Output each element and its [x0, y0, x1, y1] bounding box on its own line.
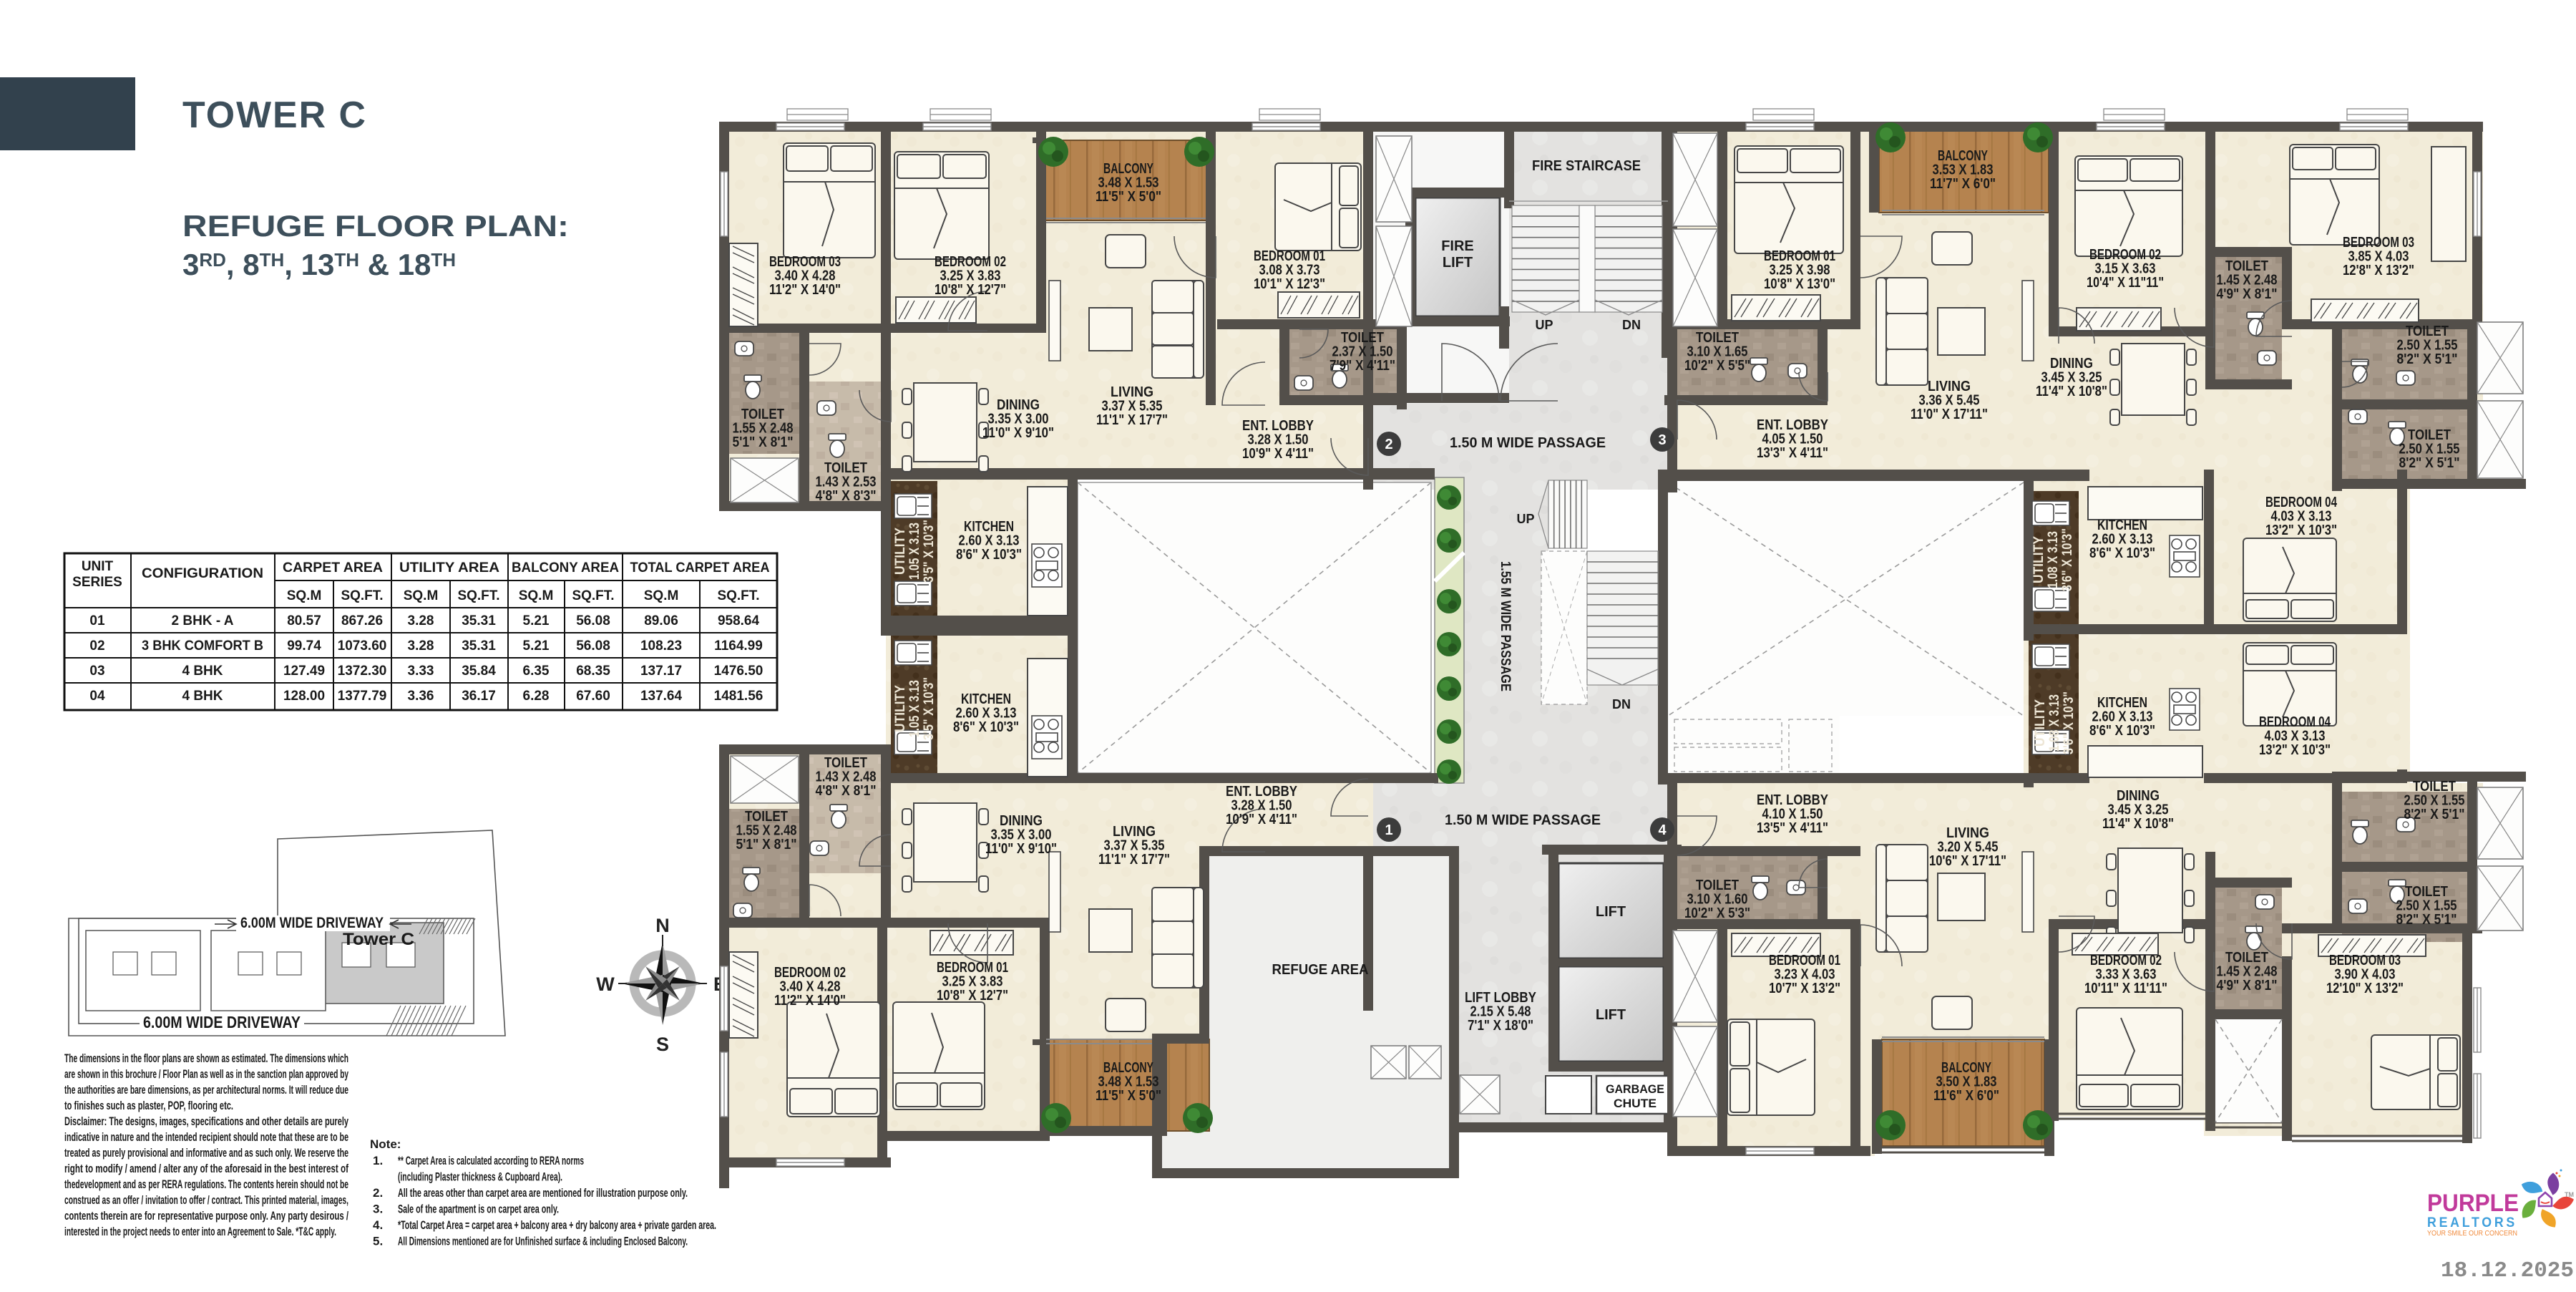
svg-text:The dimensions in the floor pl: The dimensions in the floor plans are sh… — [64, 1051, 348, 1065]
svg-text:11'0" X 17'11": 11'0" X 17'11" — [1911, 407, 1988, 422]
svg-text:UP: UP — [1516, 512, 1534, 526]
svg-text:5.21: 5.21 — [523, 613, 550, 628]
svg-text:TOWER C: TOWER C — [182, 94, 367, 136]
svg-text:UNIT: UNIT — [82, 559, 114, 574]
svg-text:36.17: 36.17 — [462, 689, 496, 704]
svg-text:128.00: 128.00 — [283, 689, 325, 704]
svg-text:2: 2 — [1385, 437, 1392, 452]
svg-text:3.28: 3.28 — [408, 613, 434, 628]
svg-text:UTILITY: UTILITY — [893, 685, 908, 732]
svg-text:56.08: 56.08 — [576, 638, 610, 654]
svg-text:10'9" X 4'11": 10'9" X 4'11" — [1226, 812, 1297, 827]
svg-text:YOUR SMILE OUR CONCERN: YOUR SMILE OUR CONCERN — [2427, 1230, 2517, 1238]
svg-text:interested in the project need: interested in the project needs to enter… — [64, 1225, 336, 1238]
svg-text:All the areas other than carpe: All the areas other than carpet area are… — [398, 1186, 688, 1200]
svg-text:11'4" X 10'8": 11'4" X 10'8" — [2102, 816, 2174, 832]
svg-text:LIFT: LIFT — [1443, 255, 1473, 271]
svg-text:SERIES: SERIES — [72, 575, 122, 590]
svg-text:8'2" X 5'1": 8'2" X 5'1" — [2404, 807, 2465, 822]
svg-text:8'2" X 5'1": 8'2" X 5'1" — [2399, 455, 2460, 471]
svg-text:3'5" X 10'3": 3'5" X 10'3" — [922, 677, 937, 740]
svg-text:01: 01 — [89, 613, 105, 628]
svg-text:1073.60: 1073.60 — [338, 638, 387, 654]
svg-text:N: N — [655, 915, 670, 936]
svg-text:UTILITY: UTILITY — [2031, 536, 2046, 583]
svg-text:4'9" X 8'1": 4'9" X 8'1" — [2217, 286, 2278, 302]
svg-text:W: W — [596, 973, 615, 995]
svg-text:FIRE: FIRE — [1441, 238, 1474, 254]
svg-text:indicative in nature and the i: indicative in nature and the intended re… — [64, 1130, 348, 1144]
svg-text:DN: DN — [1622, 318, 1641, 332]
svg-text:5.: 5. — [373, 1235, 383, 1248]
svg-text:PURPLE: PURPLE — [2427, 1190, 2519, 1217]
svg-text:Tower C: Tower C — [343, 930, 414, 949]
svg-text:10'9" X 4'11": 10'9" X 4'11" — [1242, 446, 1314, 462]
svg-text:10'1" X 12'3": 10'1" X 12'3" — [1254, 276, 1325, 292]
svg-text:4.: 4. — [373, 1218, 383, 1232]
svg-text:68.35: 68.35 — [576, 664, 610, 679]
svg-text:SQ.FT.: SQ.FT. — [572, 588, 614, 603]
svg-text:SQ.M: SQ.M — [519, 588, 554, 603]
svg-text:35.31: 35.31 — [462, 613, 496, 628]
svg-text:6.35: 6.35 — [523, 664, 550, 679]
svg-text:11'5" X 5'0": 11'5" X 5'0" — [1096, 189, 1161, 205]
svg-text:3: 3 — [1658, 432, 1666, 448]
svg-text:35.84: 35.84 — [462, 664, 496, 679]
svg-text:4'8" X 8'1": 4'8" X 8'1" — [816, 783, 877, 799]
svg-text:02: 02 — [89, 638, 104, 654]
svg-text:3'6" X 10'3": 3'6" X 10'3" — [2060, 528, 2075, 591]
svg-text:SQ.FT.: SQ.FT. — [717, 588, 759, 603]
svg-text:11'4" X 10'8": 11'4" X 10'8" — [2036, 384, 2107, 399]
svg-text:CHUTE: CHUTE — [1614, 1097, 1657, 1110]
svg-text:18.12.2025: 18.12.2025 — [2441, 1258, 2574, 1283]
svg-text:GARBAGE: GARBAGE — [1606, 1082, 1664, 1096]
svg-text:12'10" X 13'2": 12'10" X 13'2" — [2326, 981, 2404, 996]
svg-text:4'9" X 8'1": 4'9" X 8'1" — [2217, 978, 2278, 994]
svg-text:SQ.M: SQ.M — [404, 588, 439, 603]
svg-text:UTILITY AREA: UTILITY AREA — [399, 560, 499, 575]
svg-text:56.08: 56.08 — [576, 613, 610, 628]
svg-text:35.31: 35.31 — [462, 638, 496, 654]
svg-text:1.55 M WIDE PASSAGE: 1.55 M WIDE PASSAGE — [1498, 561, 1513, 691]
svg-text:11'2" X 14'0": 11'2" X 14'0" — [769, 282, 841, 298]
svg-text:4 BHK: 4 BHK — [182, 664, 223, 679]
svg-text:construed as an offer / invita: construed as an offer / invitation to of… — [64, 1193, 348, 1207]
svg-text:3.36: 3.36 — [408, 689, 434, 704]
svg-text:BALCONY AREA: BALCONY AREA — [512, 560, 619, 575]
svg-text:127.49: 127.49 — [283, 664, 325, 679]
svg-text:11'0" X 9'10": 11'0" X 9'10" — [982, 425, 1054, 441]
svg-text:to finishes such as plaster, P: to finishes such as plaster, POP, floori… — [64, 1099, 233, 1112]
svg-text:10'8" X 12'7": 10'8" X 12'7" — [935, 282, 1006, 298]
svg-text:5.21: 5.21 — [523, 638, 550, 654]
svg-text:** Carpet Area is calculated a: ** Carpet Area is calculated according t… — [398, 1154, 584, 1167]
svg-text:Disclaimer: The designs, image: Disclaimer: The designs, images, specifi… — [64, 1114, 348, 1128]
svg-text:(including Plaster thickness &: (including Plaster thickness & Cupboard … — [398, 1170, 562, 1184]
svg-text:3.: 3. — [373, 1203, 383, 1216]
svg-text:11'5" X 5'0": 11'5" X 5'0" — [1096, 1088, 1161, 1104]
svg-text:5'1" X 8'1": 5'1" X 8'1" — [736, 837, 797, 853]
svg-text:4'8" X 8'3": 4'8" X 8'3" — [816, 488, 877, 504]
svg-text:6.00M WIDE DRIVEWAY: 6.00M WIDE DRIVEWAY — [143, 1013, 301, 1031]
svg-text:1.08 X 3.13: 1.08 X 3.13 — [2046, 531, 2061, 588]
svg-text:10'8" X 13'0": 10'8" X 13'0" — [1764, 276, 1835, 292]
svg-text:13'2" X 10'3": 13'2" X 10'3" — [2259, 742, 2331, 758]
svg-text:1372.30: 1372.30 — [338, 664, 387, 679]
svg-text:10'2" X 5'3": 10'2" X 5'3" — [1684, 905, 1750, 921]
svg-text:1481.56: 1481.56 — [714, 689, 763, 704]
svg-text:CARPET AREA: CARPET AREA — [283, 560, 383, 575]
svg-text:8'2" X 5'1": 8'2" X 5'1" — [2397, 351, 2458, 367]
svg-text:contents therein are for repre: contents therein are for representative … — [64, 1209, 348, 1223]
svg-text:CONFIGURATION: CONFIGURATION — [142, 566, 263, 581]
svg-text:10'4" X 11"11": 10'4" X 11"11" — [2087, 275, 2164, 291]
svg-text:the authorities are bare dimen: the authorities are bare dimensions, as … — [64, 1083, 348, 1097]
svg-text:REFUGE AREA: REFUGE AREA — [1272, 962, 1369, 978]
svg-text:8'6" X 10'3": 8'6" X 10'3" — [953, 719, 1019, 735]
svg-text:137.64: 137.64 — [640, 689, 683, 704]
svg-text:REALTORS: REALTORS — [2427, 1215, 2517, 1230]
svg-text:958.64: 958.64 — [718, 613, 760, 628]
svg-text:6.28: 6.28 — [523, 689, 550, 704]
svg-text:1.05 X 3.13: 1.05 X 3.13 — [907, 680, 922, 737]
svg-text:10'2" X 5'5": 10'2" X 5'5" — [1684, 358, 1750, 374]
svg-text:2 BHK - A: 2 BHK - A — [172, 613, 234, 628]
svg-text:10'6" X 17'11": 10'6" X 17'11" — [1929, 853, 2006, 869]
svg-text:137.17: 137.17 — [640, 664, 682, 679]
svg-text:UTILITY: UTILITY — [893, 528, 908, 575]
svg-text:1.05 X 3.13: 1.05 X 3.13 — [907, 523, 922, 580]
svg-text:04: 04 — [89, 689, 105, 704]
svg-text:12'8" X 13'2": 12'8" X 13'2" — [2343, 263, 2414, 278]
svg-text:S: S — [656, 1034, 669, 1055]
svg-text:11'1" X 17'7": 11'1" X 17'7" — [1096, 412, 1168, 428]
svg-text:11'0" X 9'10": 11'0" X 9'10" — [985, 841, 1057, 857]
svg-text:13'5" X 4'11": 13'5" X 4'11" — [1757, 820, 1828, 836]
svg-text:1377.79: 1377.79 — [338, 689, 387, 704]
svg-text:thedevelopment and as per RERA: thedevelopment and as per RERA regulatio… — [64, 1177, 348, 1191]
svg-text:99.74: 99.74 — [287, 638, 321, 654]
svg-text:Sale of the apartment is on ca: Sale of the apartment is on carpet area … — [398, 1203, 559, 1216]
svg-text:80.57: 80.57 — [287, 613, 321, 628]
svg-text:13'3" X 4'11": 13'3" X 4'11" — [1757, 445, 1828, 461]
svg-text:TM: TM — [2565, 1191, 2574, 1198]
svg-text:TOTAL CARPET AREA: TOTAL CARPET AREA — [630, 560, 770, 575]
svg-text:67.60: 67.60 — [576, 689, 610, 704]
svg-text:7'1" X 18'0": 7'1" X 18'0" — [1468, 1018, 1533, 1034]
svg-text:Note:: Note: — [370, 1137, 401, 1151]
svg-text:7'9" X 4'11": 7'9" X 4'11" — [1330, 358, 1395, 374]
svg-text:11'1" X 17'7": 11'1" X 17'7" — [1098, 852, 1170, 868]
svg-text:1.50 M WIDE PASSAGE: 1.50 M WIDE PASSAGE — [1445, 812, 1601, 828]
svg-text:5'1" X 8'1": 5'1" X 8'1" — [733, 434, 794, 450]
svg-text:3'5" X 10'3": 3'5" X 10'3" — [922, 520, 937, 583]
svg-text:SQ.M: SQ.M — [287, 588, 322, 603]
svg-text:2.: 2. — [373, 1186, 383, 1200]
svg-text:are shown in this brochure / F: are shown in this brochure / Floor Plan … — [64, 1067, 348, 1081]
svg-text:treated as purely provisional: treated as purely provisional and inform… — [64, 1146, 348, 1160]
svg-text:REFUGE FLOOR PLAN:: REFUGE FLOOR PLAN: — [182, 209, 569, 243]
svg-text:11'2" X 14'0": 11'2" X 14'0" — [774, 993, 846, 1009]
svg-text:1.: 1. — [373, 1154, 383, 1167]
svg-text:UTILITY: UTILITY — [2033, 699, 2048, 747]
svg-text:UP: UP — [1535, 318, 1553, 332]
svg-text:1.50 M WIDE PASSAGE: 1.50 M WIDE PASSAGE — [1450, 435, 1606, 451]
svg-text:1: 1 — [1385, 822, 1392, 838]
svg-text:3.28: 3.28 — [408, 638, 434, 654]
svg-text:10'8" X 12'7": 10'8" X 12'7" — [937, 988, 1008, 1004]
svg-text:All Dimensions mentioned are f: All Dimensions mentioned are for Unfinis… — [398, 1235, 688, 1248]
svg-text:10'7" X 13'2": 10'7" X 13'2" — [1769, 981, 1840, 996]
svg-text:8'6" X 10'3": 8'6" X 10'3" — [956, 547, 1022, 563]
svg-text:4: 4 — [1658, 822, 1667, 838]
svg-text:1476.50: 1476.50 — [714, 664, 763, 679]
svg-text:1164.99: 1164.99 — [714, 638, 763, 654]
svg-text:13'2" X 10'3": 13'2" X 10'3" — [2265, 523, 2337, 538]
svg-text:867.26: 867.26 — [341, 613, 383, 628]
svg-text:3.33: 3.33 — [408, 664, 434, 679]
svg-text:LIFT: LIFT — [1596, 904, 1626, 920]
svg-text:SQ.FT.: SQ.FT. — [457, 588, 499, 603]
svg-text:DN: DN — [1612, 697, 1631, 711]
svg-text:8'2" X 5'1": 8'2" X 5'1" — [2396, 912, 2457, 928]
svg-text:*Total Carpet Area = carpet ar: *Total Carpet Area = carpet area + balco… — [398, 1218, 716, 1232]
svg-text:89.06: 89.06 — [644, 613, 678, 628]
svg-text:1.08 X 3.13: 1.08 X 3.13 — [2047, 694, 2062, 752]
svg-text:FIRE STAIRCASE: FIRE STAIRCASE — [1532, 158, 1641, 174]
svg-text:108.23: 108.23 — [640, 638, 682, 654]
svg-text:11'7" X 6'0": 11'7" X 6'0" — [1930, 176, 1996, 192]
svg-text:SQ.M: SQ.M — [644, 588, 679, 603]
svg-text:10'11" X 11'11": 10'11" X 11'11" — [2084, 981, 2167, 996]
svg-text:right to modify / amend / alte: right to modify / amend / alter any of t… — [64, 1162, 348, 1175]
svg-text:3 BHK COMFORT B: 3 BHK COMFORT B — [142, 638, 263, 654]
svg-text:03: 03 — [89, 664, 104, 679]
svg-text:SQ.FT.: SQ.FT. — [341, 588, 383, 603]
svg-text:8'6" X 10'3": 8'6" X 10'3" — [2089, 723, 2155, 739]
svg-text:4 BHK: 4 BHK — [182, 689, 223, 704]
svg-text:LIFT: LIFT — [1596, 1007, 1626, 1023]
svg-text:8'6" X 10'3": 8'6" X 10'3" — [2089, 545, 2155, 561]
svg-text:3'6" X 10'3": 3'6" X 10'3" — [2062, 691, 2077, 754]
svg-text:11'6" X 6'0": 11'6" X 6'0" — [1933, 1088, 1999, 1104]
svg-text:6.00M WIDE DRIVEWAY: 6.00M WIDE DRIVEWAY — [240, 915, 384, 931]
